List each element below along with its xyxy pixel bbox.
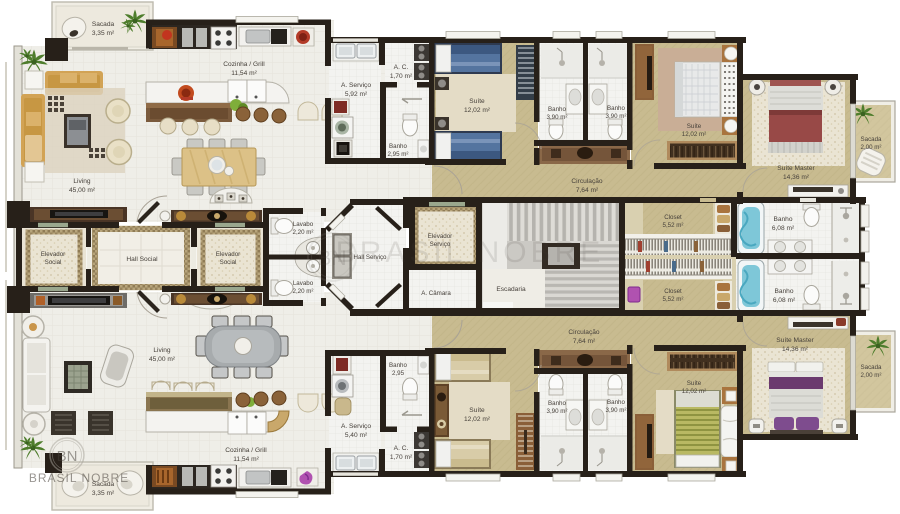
svg-text:Suíte Master: Suíte Master xyxy=(777,165,815,172)
svg-text:5,92 m²: 5,92 m² xyxy=(345,91,368,98)
svg-text:12,02 m²: 12,02 m² xyxy=(682,388,706,395)
svg-text:Suíte: Suíte xyxy=(469,407,485,414)
svg-text:Escadaria: Escadaria xyxy=(496,286,526,293)
svg-text:A. Serviço: A. Serviço xyxy=(341,82,371,89)
svg-text:Living: Living xyxy=(153,347,171,354)
svg-text:3,90 m²: 3,90 m² xyxy=(547,408,568,415)
svg-text:Banho: Banho xyxy=(389,362,407,369)
svg-text:Suíte Master: Suíte Master xyxy=(776,337,814,344)
svg-text:A. Serviço: A. Serviço xyxy=(341,423,371,430)
svg-text:BRASIL NOBRE: BRASIL NOBRE xyxy=(29,471,129,485)
svg-text:2,20 m²: 2,20 m² xyxy=(293,229,314,236)
svg-text:Closet: Closet xyxy=(664,288,682,295)
svg-text:2,20 m²: 2,20 m² xyxy=(293,288,314,295)
svg-text:6,08 m²: 6,08 m² xyxy=(773,297,796,304)
svg-text:5,52 m²: 5,52 m² xyxy=(663,296,684,303)
svg-text:Suíte: Suíte xyxy=(687,380,702,387)
svg-text:Elevador: Elevador xyxy=(216,251,240,258)
svg-text:7,64 m²: 7,64 m² xyxy=(576,187,599,194)
svg-text:1,70 m²: 1,70 m² xyxy=(390,454,413,461)
svg-text:3,90 m²: 3,90 m² xyxy=(606,113,627,120)
svg-text:Living: Living xyxy=(73,178,91,185)
svg-text:12,02 m²: 12,02 m² xyxy=(682,131,706,138)
svg-text:Sacada: Sacada xyxy=(861,136,883,143)
svg-text:14,36 m²: 14,36 m² xyxy=(782,346,809,353)
svg-text:Sacada: Sacada xyxy=(861,364,883,371)
svg-text:3,35 m²: 3,35 m² xyxy=(92,30,115,37)
svg-text:A. Câmara: A. Câmara xyxy=(421,290,451,297)
svg-text:Suíte: Suíte xyxy=(687,123,702,130)
svg-text:Banho: Banho xyxy=(773,216,792,223)
svg-text:5,40 m²: 5,40 m² xyxy=(345,432,368,439)
svg-text:2,00 m²: 2,00 m² xyxy=(861,372,882,379)
svg-text:Social: Social xyxy=(45,259,62,266)
svg-text:BRASIL NOBRE: BRASIL NOBRE xyxy=(336,236,605,269)
svg-text:Lavabo: Lavabo xyxy=(293,221,314,228)
svg-text:Banho: Banho xyxy=(548,400,566,407)
svg-text:12,02 m²: 12,02 m² xyxy=(464,416,491,423)
svg-text:11,54 m²: 11,54 m² xyxy=(233,456,259,463)
svg-text:11,54 m²: 11,54 m² xyxy=(231,70,257,77)
svg-text:Banho: Banho xyxy=(389,143,407,150)
svg-text:7,64 m²: 7,64 m² xyxy=(573,338,596,345)
svg-text:Cozinha / Grill: Cozinha / Grill xyxy=(225,447,267,454)
svg-text:2,95 m²: 2,95 m² xyxy=(388,151,409,158)
svg-text:12,02 m²: 12,02 m² xyxy=(464,107,491,114)
svg-text:2,00 m²: 2,00 m² xyxy=(861,144,882,151)
svg-text:3,90 m²: 3,90 m² xyxy=(547,114,568,121)
svg-text:45,00 m²: 45,00 m² xyxy=(149,356,176,363)
svg-text:A. C.: A. C. xyxy=(394,445,409,452)
svg-text:BN: BN xyxy=(57,448,78,465)
svg-text:Banho: Banho xyxy=(548,106,566,113)
svg-text:Circulação: Circulação xyxy=(568,329,599,336)
svg-text:14,36 m²: 14,36 m² xyxy=(783,174,810,181)
svg-text:1,70 m²: 1,70 m² xyxy=(390,73,413,80)
svg-text:3,35 m²: 3,35 m² xyxy=(92,490,115,497)
svg-text:Hall Social: Hall Social xyxy=(126,256,158,263)
svg-text:A. C.: A. C. xyxy=(394,64,409,71)
svg-text:5,52 m²: 5,52 m² xyxy=(663,222,684,229)
svg-text:Banho: Banho xyxy=(607,105,625,112)
svg-text:Suíte: Suíte xyxy=(469,98,485,105)
svg-text:Banho: Banho xyxy=(774,288,793,295)
svg-text:Closet: Closet xyxy=(664,214,682,221)
svg-text:Elevador: Elevador xyxy=(41,251,65,258)
svg-text:Banho: Banho xyxy=(607,399,625,406)
svg-text:2,95: 2,95 xyxy=(392,370,405,377)
svg-text:6,08 m²: 6,08 m² xyxy=(772,225,795,232)
svg-text:Lavabo: Lavabo xyxy=(293,280,314,287)
svg-text:Social: Social xyxy=(220,259,237,266)
svg-text:Cozinha / Grill: Cozinha / Grill xyxy=(223,61,265,68)
svg-text:Circulação: Circulação xyxy=(571,178,602,185)
svg-text:45,00 m²: 45,00 m² xyxy=(69,187,96,194)
svg-text:3,90 m²: 3,90 m² xyxy=(606,407,627,414)
svg-text:Sacada: Sacada xyxy=(92,21,115,28)
